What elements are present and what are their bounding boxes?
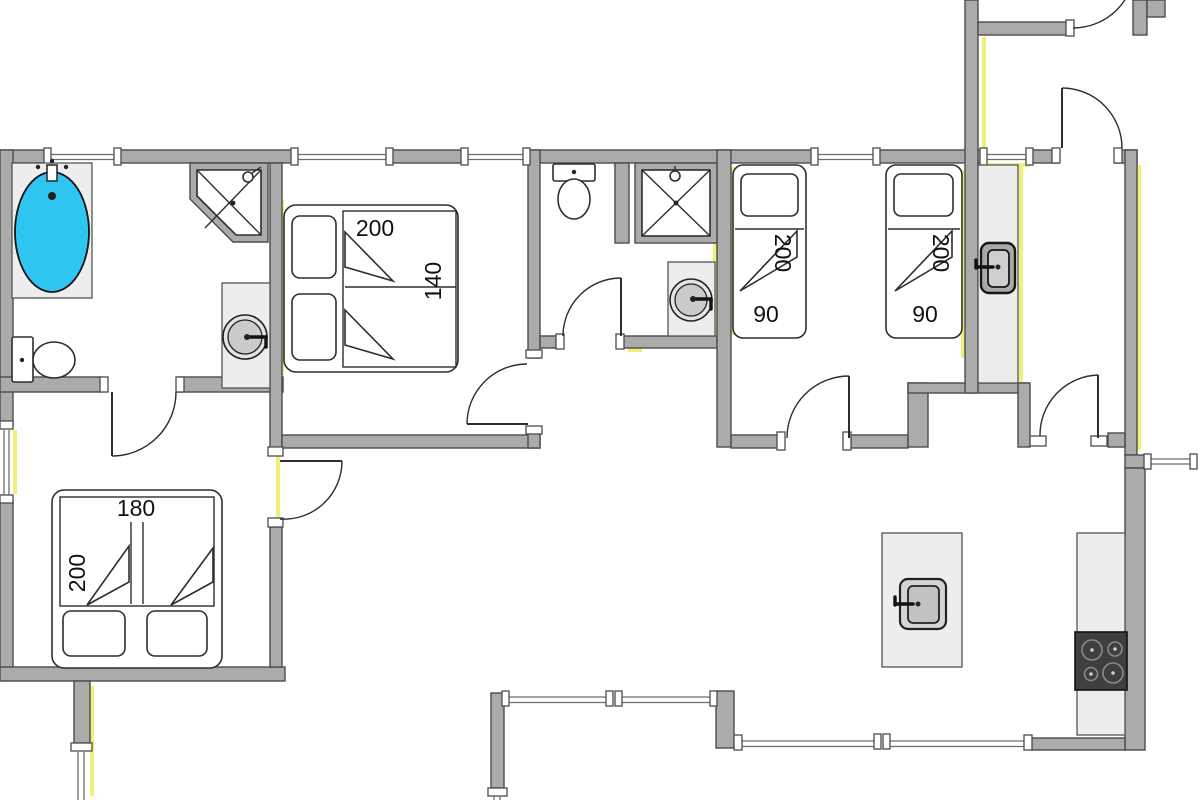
dimension-single-b-length: 200 (928, 234, 954, 272)
dimension-single-b-width: 90 (912, 301, 938, 327)
dimension-double-bed-length: 200 (356, 215, 394, 241)
dimension-single-a-length: 200 (770, 234, 796, 272)
pillow (292, 294, 336, 360)
kitchen-island (882, 533, 962, 667)
shower-knob-icon (670, 171, 680, 181)
door-shower-room (556, 278, 624, 349)
sink-bathroom (222, 283, 270, 388)
toilet-middle (553, 164, 595, 219)
door-single-bedroom (777, 376, 851, 450)
dimension-twin-width: 180 (117, 495, 155, 521)
pillow (292, 216, 336, 278)
single-bed-a: 200 90 (733, 165, 806, 338)
corner-shower-bathroom (190, 163, 268, 242)
floor-plan: 200 140 200 90 200 90 (0, 0, 1200, 800)
window-north-niche (980, 148, 1033, 165)
toilet-bathroom (12, 337, 75, 382)
kitchen-counter (1075, 533, 1127, 735)
bathtub-faucet-icon (47, 165, 57, 181)
door-porch (1066, 0, 1135, 36)
dimension-double-bed-width: 140 (420, 262, 446, 300)
walls (0, 0, 1165, 788)
pillow (63, 611, 125, 656)
pillow (894, 174, 953, 216)
window-north-bedroom1-b (461, 148, 530, 165)
single-bed-b: 200 90 (886, 165, 962, 338)
window-southwest-stub (78, 752, 84, 800)
utility-counter (976, 165, 1018, 383)
bathtub (12, 159, 92, 298)
window-north-single-bedroom (811, 148, 880, 165)
double-bed: 200 140 (284, 205, 458, 372)
dimension-single-a-width: 90 (753, 301, 779, 327)
dimension-twin-length: 200 (64, 554, 90, 592)
door-hall-living (1030, 375, 1107, 446)
window-north-bedroom1-a (291, 148, 393, 165)
floor-plan-canvas: 200 140 200 90 200 90 (0, 0, 1200, 800)
pillow (741, 174, 798, 216)
window-southeast (1144, 454, 1197, 469)
window-south-lower (734, 734, 1032, 750)
kitchen-sink (895, 579, 946, 629)
door-bathroom-twinroom (100, 377, 184, 456)
pillow (147, 611, 207, 656)
shower-knob-icon (243, 172, 253, 182)
window-below-post (488, 788, 507, 800)
window-south-upper (502, 691, 717, 706)
window-west (0, 421, 13, 503)
door-entrance (1052, 88, 1122, 163)
door-bedroom1 (467, 350, 542, 434)
stove (1075, 632, 1127, 690)
utility-sink (976, 243, 1015, 293)
twin-bed: 180 200 (52, 490, 222, 668)
corner-shower-middle (635, 163, 717, 243)
sink-middle (668, 262, 715, 336)
